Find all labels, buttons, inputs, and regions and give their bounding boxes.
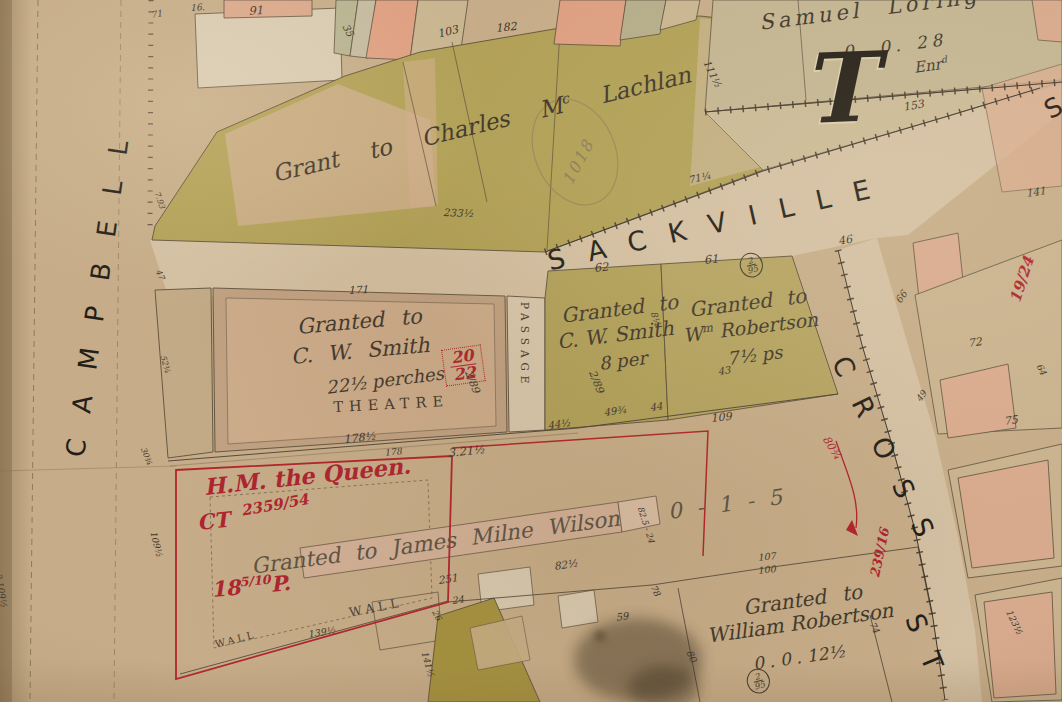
measurement: 141½: [419, 650, 436, 678]
measurement: 100: [757, 563, 776, 576]
queen-ct-number: 2359/54: [240, 492, 310, 519]
oval-stamp-text: 1018: [560, 137, 598, 188]
parcel-label-wilson: Granted to James Milne Wilson 0 - 1 - 5: [250, 486, 784, 578]
measurement: 111½: [701, 58, 724, 89]
street-label-sackville-continuation: S: [1040, 92, 1062, 124]
wall-label-b: WALL: [348, 596, 403, 619]
measurement: 141: [1025, 184, 1047, 199]
measurement: 3.109½: [0, 572, 9, 608]
circ-den-a: 95: [746, 264, 759, 275]
measurement: 91: [248, 3, 264, 18]
measurement: 178½: [343, 430, 376, 446]
parcel-label-robertson-south-area: 0 . 0 . 12½: [752, 643, 846, 673]
parcel-label-mclachlan: Grant to Charles Mc Lachlan: [270, 62, 693, 186]
parcel-label-smith-east-area: 8 per: [598, 349, 648, 374]
parcel-label-robertson-north-area: 7½ ps: [726, 343, 783, 369]
circled-plan-ref-a: 2 95: [737, 250, 766, 280]
measurement: 64: [1034, 362, 1048, 377]
street-label-cross-st: ST: [900, 610, 957, 696]
enr-sup: d: [940, 54, 947, 65]
measurement: 139½: [307, 624, 336, 640]
measurement: 16.: [190, 2, 205, 13]
enr-base: Enr: [913, 55, 943, 77]
red-annotation-80: 80¾: [820, 434, 843, 461]
measurement: 182: [495, 20, 517, 35]
measurement: 61: [703, 251, 719, 266]
measurement: 47: [154, 268, 166, 281]
mclachlan-text: Grant to Charles M: [270, 92, 565, 187]
measurement: 44: [649, 400, 663, 413]
label-layer: CAMPBELL SACKVILLE S CROSS ST Grant to C…: [0, 0, 1062, 702]
parcel-label-theatre: THEATRE: [333, 394, 449, 415]
measurement: 66: [893, 289, 909, 306]
measurement: 30¾: [139, 446, 154, 466]
measurement: 26: [430, 608, 444, 622]
circ-den-b: 95: [753, 680, 766, 691]
measurement: 24: [451, 593, 465, 606]
street-label-campbell: CAMPBELL: [62, 113, 137, 459]
measurement: 233½: [443, 206, 474, 219]
queen-ct-label: CT: [196, 509, 230, 534]
measurement: 109: [710, 410, 732, 425]
measurement: 107: [757, 550, 776, 563]
parcel-label-loring-enrolled: Enrd: [913, 55, 949, 76]
block-letter-T: T: [800, 38, 875, 141]
measurement: 78: [648, 583, 662, 598]
measurement: 75: [1003, 413, 1019, 428]
parcel-label-smith-theatre-name: C. W. Smith: [290, 334, 430, 368]
red-annotation-239-16: 239/16: [868, 527, 892, 579]
measurement: 44½: [547, 417, 571, 431]
measurement: 178: [384, 446, 402, 458]
measurement: 103: [436, 23, 460, 41]
queen-area-base: 18: [210, 574, 241, 601]
measurement: 251: [437, 571, 459, 586]
measurement: 46: [837, 233, 853, 248]
wall-label-a: WALL: [214, 630, 258, 650]
mclachlan-rest: Lachlan: [567, 61, 694, 115]
measurement: 171: [348, 283, 369, 296]
measurement: 153: [902, 97, 925, 113]
measurement: 59: [615, 610, 629, 623]
passage-label: PASSAGE: [519, 302, 530, 389]
wm-base: W: [682, 322, 704, 346]
measurement: 43: [717, 364, 731, 377]
map-canvas: CAMPBELL SACKVILLE S CROSS ST Grant to C…: [0, 0, 1062, 702]
measurement: 7.93: [152, 190, 166, 210]
measurement: 49: [914, 389, 929, 404]
red-annotation-19-24: 19/24: [1008, 255, 1038, 305]
wilson-area: 0 - 1 - 5: [666, 484, 783, 524]
measurement: 71: [150, 8, 163, 20]
measurement: 72: [967, 335, 983, 350]
measurement: 62: [593, 259, 609, 274]
measurement: 109½: [148, 530, 164, 558]
parcel-label-smith-theatre-area: 22½ perches: [325, 365, 445, 398]
measurement: 35: [340, 22, 356, 38]
measurement: 80: [684, 648, 699, 664]
parcel-label-smith-theatre-granted: Granted to: [296, 305, 422, 338]
queen-area-label: 185/10P.: [210, 571, 291, 601]
measurement: 3.21½: [447, 442, 485, 460]
parcel-label-loring-name: Samuel Loring: [758, 0, 982, 34]
measurement: 52¼: [158, 354, 172, 374]
measurement: 123½: [1004, 608, 1024, 636]
measurement: 49¾: [603, 404, 627, 418]
measurement: 71¼: [687, 170, 711, 186]
measurement: 82½: [553, 557, 578, 572]
